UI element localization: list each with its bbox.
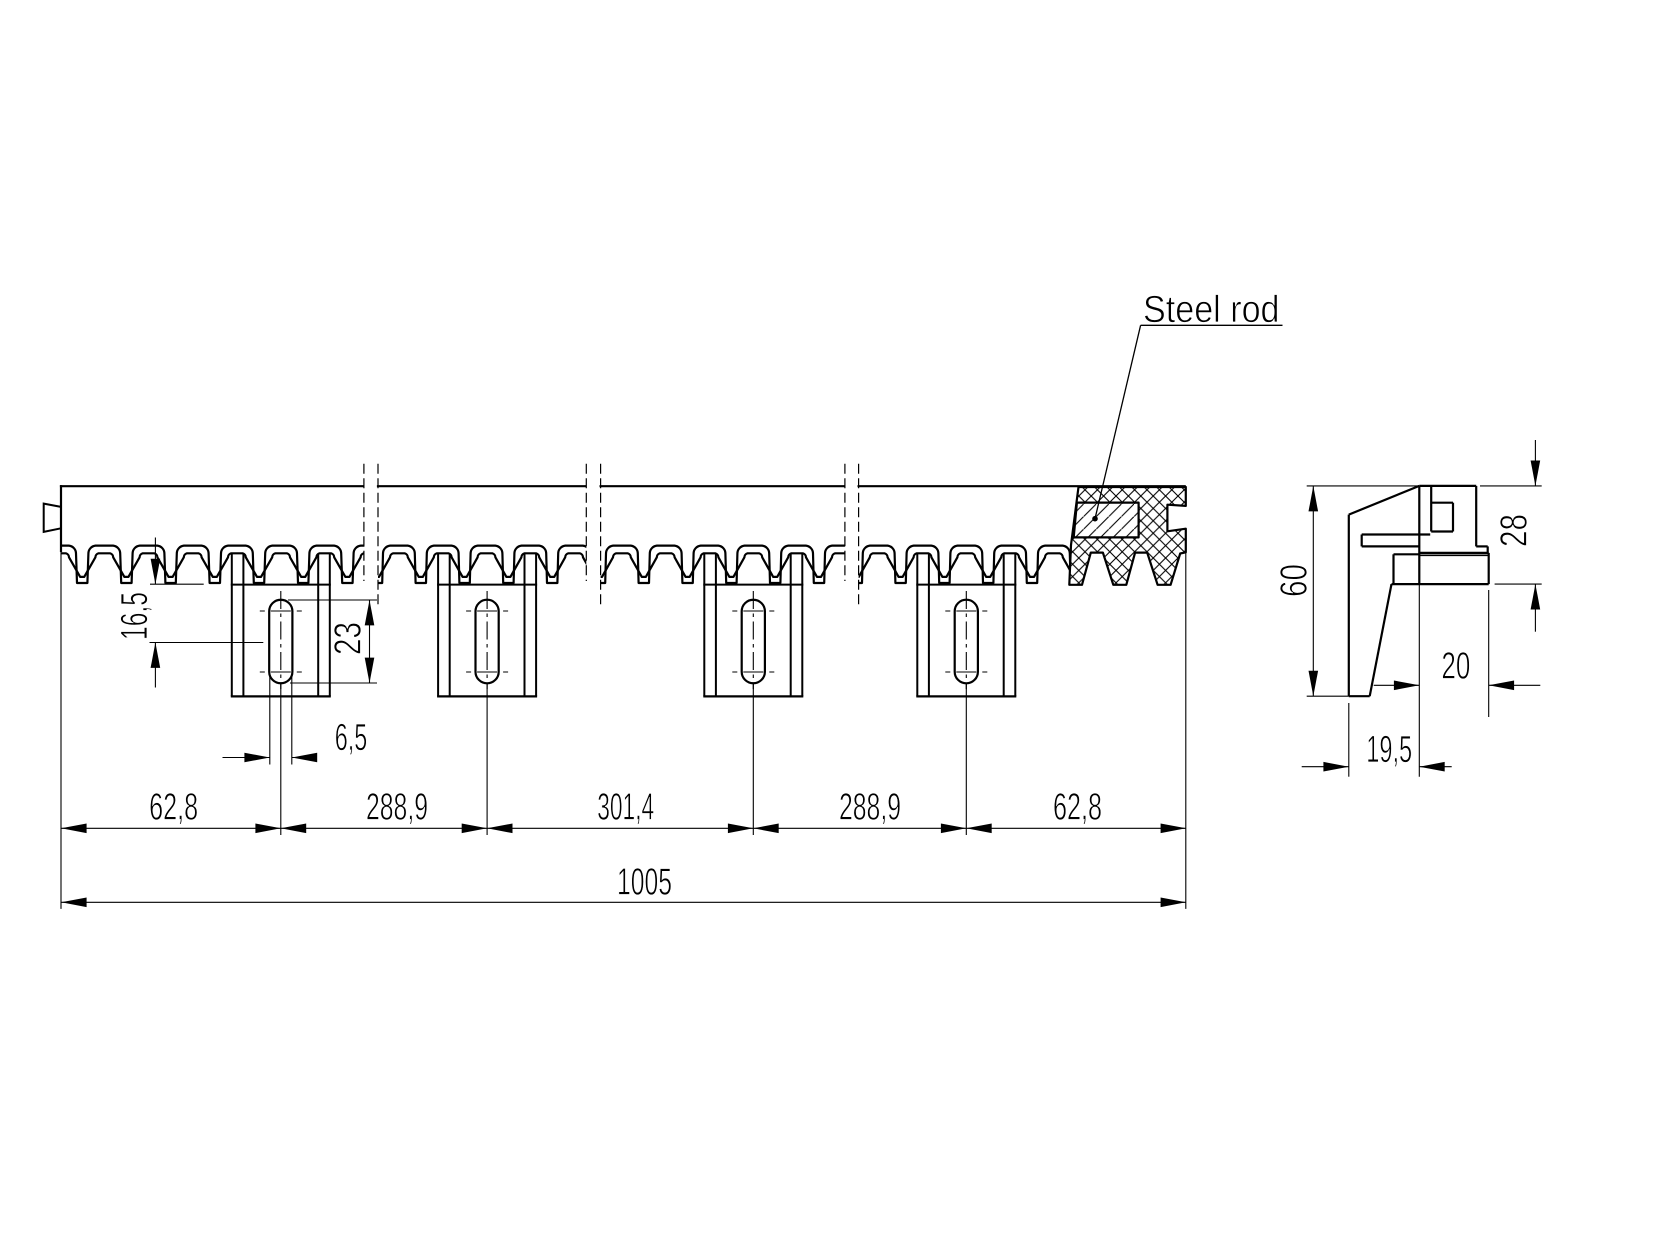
svg-text:20: 20: [1441, 645, 1470, 687]
svg-text:1005: 1005: [617, 861, 672, 903]
svg-text:6,5: 6,5: [335, 717, 368, 759]
svg-text:62,8: 62,8: [149, 787, 198, 829]
svg-text:23: 23: [328, 622, 370, 655]
svg-text:288,9: 288,9: [366, 787, 428, 829]
svg-text:62,8: 62,8: [1053, 787, 1102, 829]
svg-text:301,4: 301,4: [597, 787, 654, 829]
svg-text:60: 60: [1274, 564, 1316, 597]
svg-text:19,5: 19,5: [1366, 729, 1412, 771]
svg-text:Steel rod: Steel rod: [1143, 289, 1280, 331]
svg-text:288,9: 288,9: [839, 787, 901, 829]
svg-text:28: 28: [1494, 514, 1536, 547]
svg-text:16,5: 16,5: [114, 592, 156, 640]
